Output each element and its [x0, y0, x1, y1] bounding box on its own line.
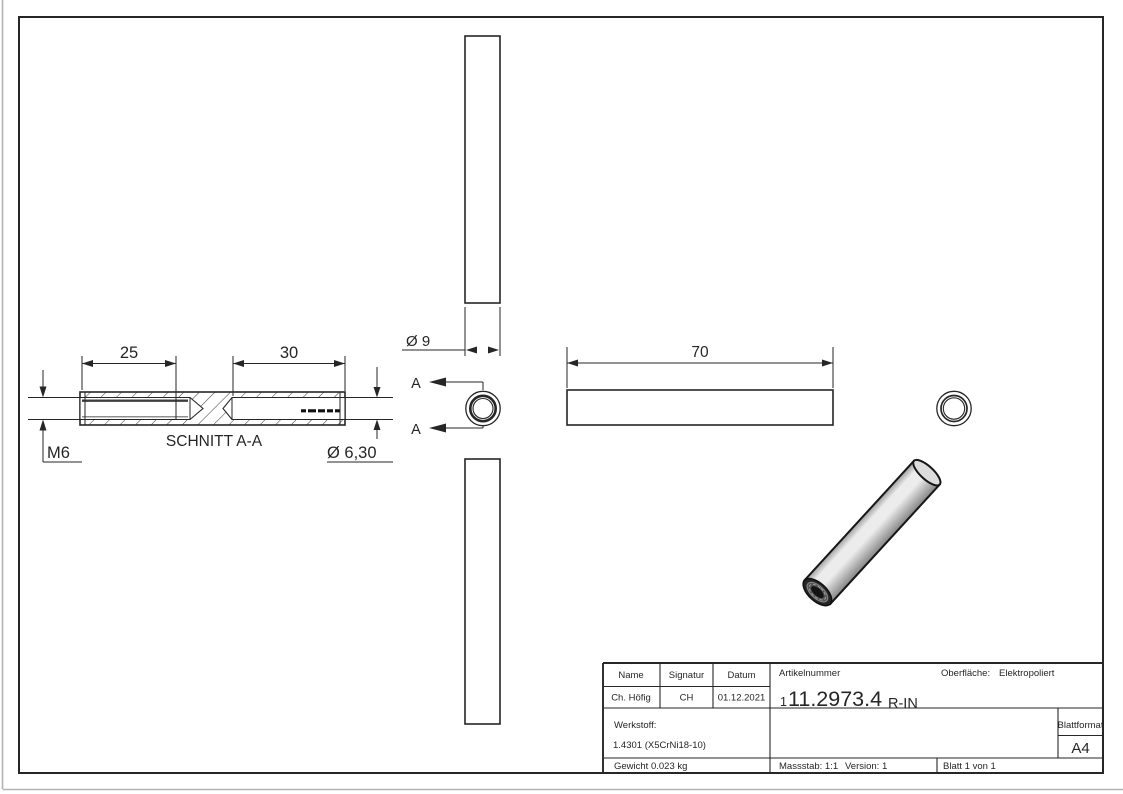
- dimension-outer-dia: Ø 9: [402, 307, 500, 356]
- dim-30-text: 30: [280, 344, 298, 362]
- blattformat-label: Blattformat: [1058, 720, 1104, 731]
- bore-cavity: [223, 398, 345, 420]
- title-block: Name Signatur Datum Ch. Höfig CH 01.12.2…: [603, 663, 1104, 773]
- gewicht-text: Gewicht 0.023 kg: [614, 761, 687, 772]
- blatt-text: Blatt 1 von 1: [943, 761, 996, 772]
- artikelnummer-label: Artikelnummer: [779, 668, 840, 679]
- section-view: 25 30 M6: [28, 344, 393, 462]
- tube-view-lower: [465, 459, 500, 724]
- drawing-sheet: 25 30 M6: [0, 0, 1123, 794]
- value-signatur: CH: [680, 693, 694, 704]
- oberflaeche-label: Oberfläche:: [941, 668, 990, 679]
- werkstoff-value: 1.4301 (X5CrNi18-10): [613, 740, 706, 751]
- end-view-circle-plain: [937, 391, 971, 425]
- massstab-text: Massstab: 1:1: [779, 761, 838, 772]
- header-name: Name: [618, 670, 643, 681]
- werkstoff-label: Werkstoff:: [614, 720, 656, 731]
- dimension-m6: M6: [28, 370, 82, 462]
- part-3d-render: [798, 456, 944, 611]
- tube-view-upper: [465, 36, 500, 303]
- blattformat-value: A4: [1071, 740, 1089, 757]
- dimension-70: 70: [567, 344, 833, 388]
- outer-dia-text: Ø 9: [406, 333, 430, 350]
- dimension-30: 30: [233, 344, 345, 396]
- cad-drawing-canvas: 25 30 M6: [0, 0, 1123, 794]
- oberflaeche-value: Elektropoliert: [999, 668, 1055, 679]
- tube-side-view: [567, 390, 833, 425]
- front-view-vertical: Ø 9 A A: [402, 36, 500, 724]
- section-view-label: SCHNITT A-A: [166, 433, 263, 450]
- bore-dia-text: Ø 6,30: [327, 444, 377, 462]
- side-view-horizontal: 70: [567, 344, 971, 426]
- artikelnummer-main: 11.2973.4: [788, 687, 882, 711]
- header-datum: Datum: [728, 670, 756, 681]
- artikelnummer-suffix: R-IN: [888, 696, 918, 712]
- end-view-circle-threaded: [466, 391, 500, 425]
- section-cut-marks: A A: [411, 376, 483, 438]
- header-signatur: Signatur: [669, 670, 704, 681]
- dim-25-text: 25: [120, 344, 138, 362]
- value-name: Ch. Höfig: [611, 693, 651, 704]
- version-text: Version: 1: [845, 761, 887, 772]
- section-mark-a-top: A: [411, 376, 421, 392]
- section-mark-a-bottom: A: [411, 422, 421, 438]
- dim-70-text: 70: [691, 344, 709, 361]
- value-datum: 01.12.2021: [718, 693, 766, 704]
- artikelnummer-prefix: 1: [780, 695, 787, 709]
- thread-size-text: M6: [47, 444, 70, 462]
- cylinder-body: [805, 461, 940, 604]
